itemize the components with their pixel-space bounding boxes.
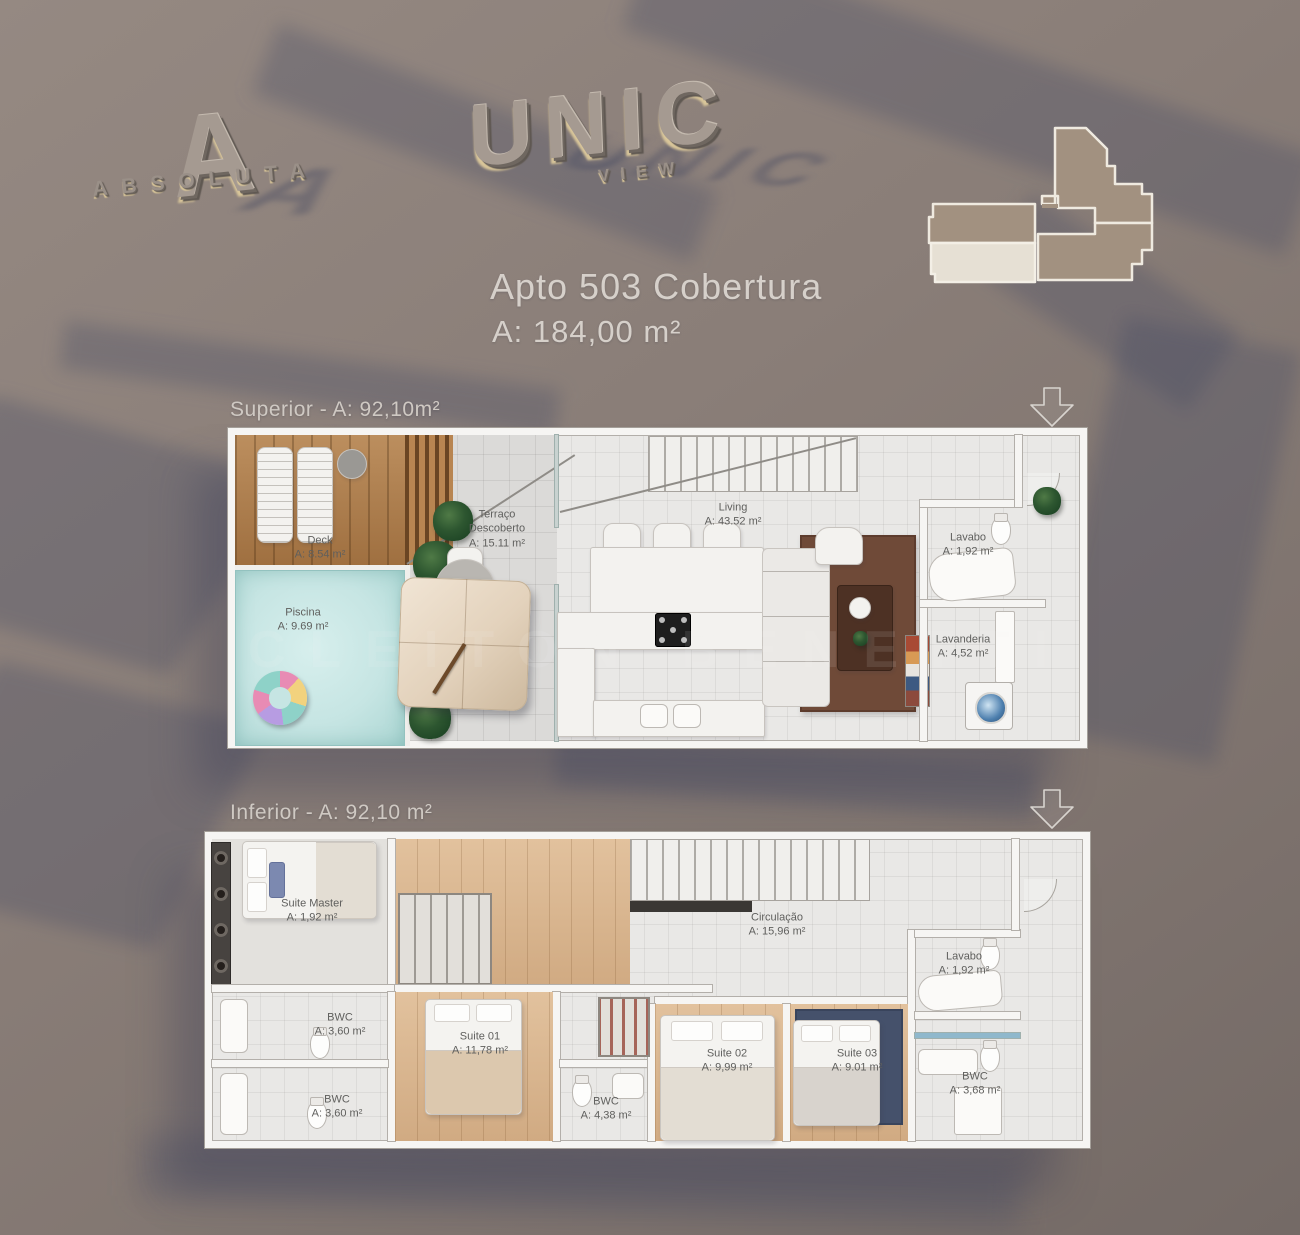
room-label-suite01: Suite 01 A: 11,78 m²: [452, 1030, 508, 1059]
louver-circle: [214, 887, 228, 901]
room-name: Suite 02: [707, 1047, 747, 1061]
room-area: A: 1,92 m²: [287, 911, 338, 925]
armchair: [815, 527, 863, 565]
room-name: Living: [719, 501, 748, 515]
building-keyplan: [915, 116, 1260, 336]
toilet: [991, 517, 1011, 545]
room-name: BWC: [962, 1070, 988, 1084]
room-name: Lavabo: [946, 950, 982, 964]
room-label-bwc-middle: BWC A: 4,38 m²: [581, 1095, 632, 1124]
designer-watermark: CLEITON BENETTI: [248, 620, 1072, 680]
entry-door-swing: [1024, 879, 1057, 912]
room-label-lavabo-inferior: Lavabo A: 1,92 m²: [939, 950, 990, 979]
room-label-suite03: Suite 03 A: 9.01 m²: [832, 1047, 883, 1076]
sun-lounger: [257, 447, 293, 543]
middle-closet: [598, 997, 650, 1057]
bed-pillow: [839, 1025, 871, 1042]
bed-pillow: [721, 1021, 763, 1041]
room-label-bwc-right: BWC A: 3,68 m²: [950, 1070, 1001, 1099]
room-name: Deck: [307, 534, 332, 548]
room-area: A: 9,99 m²: [702, 1061, 753, 1075]
room-name: Suite 01: [460, 1030, 500, 1044]
keyplan-left-wing: [929, 204, 1035, 243]
room-area: A: 3,68 m²: [950, 1084, 1001, 1098]
bwc-sink-counter: [220, 999, 248, 1053]
glass-partition: [555, 435, 558, 527]
room-name: Terraço Descoberto: [451, 508, 543, 537]
room-area: A: 3,60 m²: [315, 1025, 366, 1039]
wall: [212, 985, 395, 992]
wall: [388, 839, 395, 985]
keyplan-unit-503-highlight: [931, 243, 1035, 282]
inferior-floor-plan: Suite Master A: 1,92 m² Circulação A: 15…: [205, 832, 1090, 1148]
floorplan-poster: A A ABSOLUTA UNIC UNIC VIEW Apto 503 Cob…: [0, 0, 1300, 1235]
room-area: A: 1,92 m²: [943, 545, 994, 559]
poster-title: Apto 503 Cobertura: [490, 266, 822, 308]
kitchen-sink: [640, 704, 668, 728]
wall: [655, 997, 915, 1004]
room-name: Suite 03: [837, 1047, 877, 1061]
superior-floor-label: Superior - A: 92,10m²: [230, 398, 440, 422]
keyplan-right-wing: [1038, 223, 1152, 280]
room-area: A: 1,92 m²: [939, 964, 990, 978]
bed-pillow: [247, 882, 267, 912]
room-label-bwc-bottom-left: BWC A: 3,60 m²: [312, 1093, 363, 1122]
wall: [915, 1012, 1020, 1019]
bed-pillow: [671, 1021, 713, 1041]
wall: [920, 500, 1016, 507]
room-name: BWC: [593, 1095, 619, 1109]
bwc-sink-counter: [220, 1073, 248, 1135]
wall: [395, 985, 712, 992]
toilet: [980, 1044, 1000, 1072]
room-label-lavabo-superior: Lavabo A: 1,92 m²: [943, 531, 994, 560]
bed-blanket: [426, 1050, 521, 1114]
wall: [553, 992, 560, 1141]
entry-arrow-down-superior: [1026, 386, 1078, 428]
room-label-bwc-top-left: BWC A: 3,60 m²: [315, 1011, 366, 1040]
suite02-bed: [660, 1015, 775, 1141]
wall: [1015, 435, 1022, 507]
wall: [1012, 839, 1019, 930]
louver-circle: [214, 851, 228, 865]
keyplan-tower: [1042, 128, 1152, 223]
room-name: BWC: [327, 1011, 353, 1025]
room-area: A: 9.01 m²: [832, 1061, 883, 1075]
wall: [920, 600, 1045, 607]
stair-void: [630, 901, 752, 912]
balcony-louver-panel: [212, 843, 230, 991]
room-area: A: 4,38 m²: [581, 1109, 632, 1123]
poster-total-area: A: 184,00 m²: [492, 314, 681, 350]
room-label-living: Living A: 43.52 m²: [705, 501, 762, 530]
bed-pillow: [247, 848, 267, 878]
bed-pillow: [801, 1025, 833, 1042]
deck-side-table: [337, 449, 367, 479]
room-label-terraco: Terraço Descoberto A: 15.11 m²: [451, 508, 543, 551]
room-area: A: 15,96 m²: [749, 925, 806, 939]
bed-pillow: [434, 1004, 470, 1022]
louver-circle: [214, 923, 228, 937]
washing-machine: [965, 682, 1013, 730]
inferior-floor-label: Inferior - A: 92,10 m²: [230, 801, 432, 825]
room-name: Lavabo: [950, 531, 986, 545]
bed-blanket: [661, 1067, 774, 1140]
bed-pillow: [476, 1004, 512, 1022]
wall: [388, 992, 395, 1141]
room-area: A: 3,60 m²: [312, 1107, 363, 1121]
room-area: A: 8.54 m²: [295, 548, 346, 562]
absoluta-monogram: A: [163, 84, 265, 225]
serving-tray: [849, 597, 871, 619]
room-name: Suite Master: [281, 897, 343, 911]
room-area: A: 11,78 m²: [452, 1044, 508, 1058]
entry-plant: [1033, 487, 1061, 515]
room-area: A: 15.11 m²: [469, 536, 525, 550]
shower-glass: [915, 1033, 1020, 1038]
sun-lounger: [297, 447, 333, 543]
wall: [783, 1004, 790, 1141]
room-name: Piscina: [285, 606, 320, 620]
superior-floor-plan: Deck A: 8.54 m² Piscina A: 9.69 m² Terra…: [228, 428, 1087, 748]
bed-blanket: [794, 1067, 879, 1125]
keyplan-connector: [1042, 204, 1058, 208]
room-name: BWC: [324, 1093, 350, 1107]
louver-circle: [214, 959, 228, 973]
wall: [915, 930, 1020, 937]
staircase-inferior: [630, 839, 870, 901]
hall-wardrobe: [398, 893, 492, 985]
room-label-circulacao: Circulação A: 15,96 m²: [749, 911, 806, 940]
bed-pillow-accent: [269, 862, 285, 898]
room-label-deck: Deck A: 8.54 m²: [295, 534, 346, 563]
kitchen-sink: [673, 704, 701, 728]
room-area: A: 43.52 m²: [705, 515, 762, 529]
wall: [560, 1060, 655, 1067]
room-label-suite-master: Suite Master A: 1,92 m²: [281, 897, 343, 926]
room-label-suite02: Suite 02 A: 9,99 m²: [702, 1047, 753, 1076]
entry-arrow-down-inferior: [1026, 788, 1078, 830]
wall: [212, 1060, 388, 1067]
wall: [908, 930, 915, 1141]
room-name: Circulação: [751, 911, 803, 925]
